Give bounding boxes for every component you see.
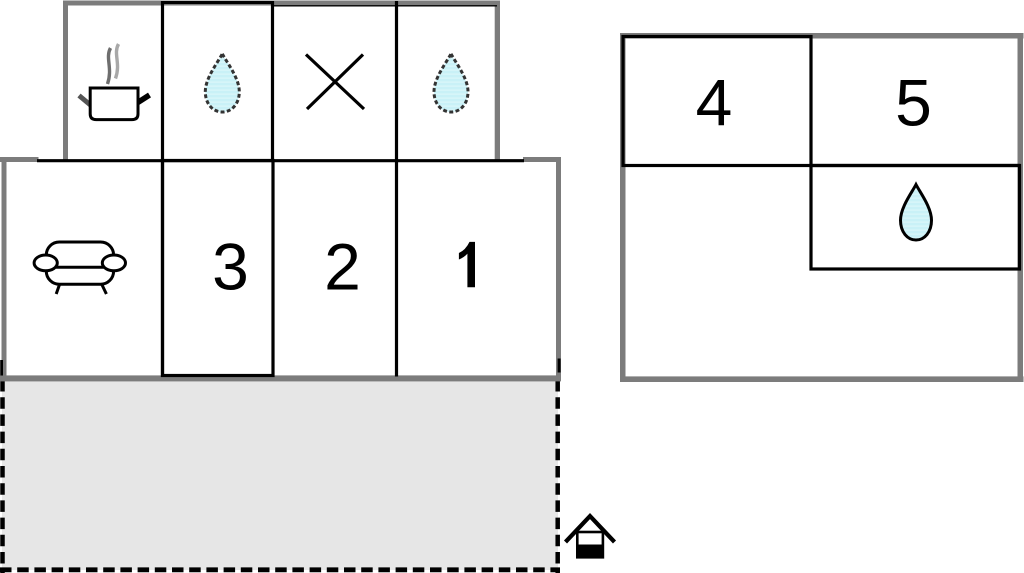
svg-text:2: 2 [324,229,361,303]
svg-text:4: 4 [696,65,733,139]
svg-text:3: 3 [212,229,249,303]
svg-text:5: 5 [895,65,932,139]
